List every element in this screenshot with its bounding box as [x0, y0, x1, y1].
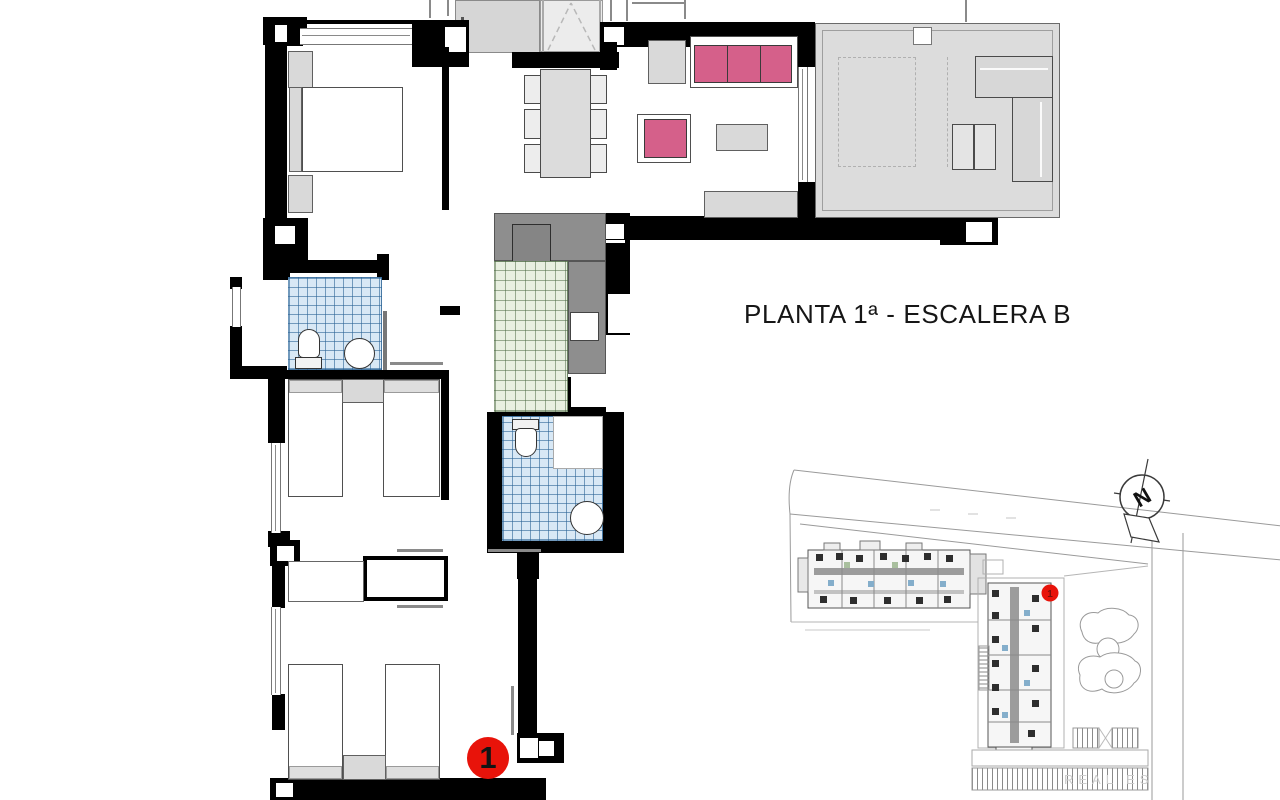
- wardrobe: [288, 561, 364, 602]
- cooktop: [512, 224, 551, 263]
- wall: [272, 694, 285, 730]
- shower-screen: [383, 311, 387, 370]
- bed-pillow: [386, 766, 439, 779]
- wall: [603, 412, 624, 544]
- neighbor-line: [447, 0, 449, 16]
- armchair-cushion: [644, 119, 687, 158]
- north-label: N: [1129, 483, 1155, 513]
- neighbor-line: [632, 2, 684, 4]
- door-line: [390, 362, 443, 365]
- closet-door-line: [397, 549, 443, 552]
- nightstand: [343, 755, 386, 780]
- toilet: [298, 329, 320, 358]
- site-stairs: [979, 646, 989, 690]
- bed-pillow: [289, 766, 342, 779]
- bed-pillow: [384, 380, 439, 393]
- window: [271, 607, 281, 695]
- wall-pillar: [603, 224, 624, 239]
- neighbor-line: [429, 0, 431, 18]
- wall: [300, 20, 412, 24]
- wall-pillar: [276, 783, 293, 797]
- wall: [230, 326, 242, 370]
- site-building-1: [798, 541, 986, 608]
- side-table: [648, 40, 686, 84]
- wall: [278, 370, 449, 379]
- terrace-pergola-line: [947, 57, 948, 167]
- sofa-cushion: [760, 45, 792, 83]
- dining-table: [540, 69, 591, 178]
- double-bed: [302, 87, 403, 172]
- window: [300, 28, 412, 45]
- wall: [600, 216, 980, 240]
- toilet-tank: [295, 357, 322, 369]
- wall-pillar: [277, 546, 294, 561]
- window: [511, 686, 514, 735]
- washbasin: [570, 501, 604, 535]
- wall: [600, 42, 617, 70]
- neighbor-line: [965, 0, 967, 22]
- wall: [270, 778, 546, 800]
- terrace-sofa: [1012, 97, 1053, 182]
- wall: [442, 47, 449, 210]
- terrace-sofa-line: [980, 68, 1048, 70]
- terrace-pillar: [913, 27, 932, 45]
- coffee-table: [716, 124, 768, 151]
- wall-pillar: [520, 738, 538, 758]
- shower-tray: [553, 416, 603, 469]
- wall-pillar: [275, 226, 295, 244]
- twin-bed: [383, 379, 440, 497]
- terrace-pergola-outline: [838, 57, 916, 167]
- neighbor-line: [684, 0, 686, 19]
- north-arrow-icon: N: [1114, 459, 1170, 543]
- twin-bed: [288, 379, 343, 497]
- floor-plan-page: PLANTA 1ª - ESCALERA B 1: [0, 0, 1280, 800]
- kitchen-sink: [570, 312, 599, 341]
- window-midline: [275, 445, 276, 531]
- terrace-sofa: [975, 56, 1053, 98]
- window-midline: [275, 609, 276, 693]
- site-unit-marker-label: 1: [1047, 589, 1053, 600]
- sofa-cushion: [694, 45, 728, 83]
- window-midline: [802, 69, 803, 180]
- watermark: REAL ES: [1064, 772, 1153, 787]
- site-pools: [1078, 608, 1140, 692]
- site-building-2: [979, 583, 1051, 759]
- wall: [517, 553, 539, 579]
- closet-door-line: [488, 549, 541, 552]
- neighbor-line: [610, 0, 612, 21]
- wall: [268, 379, 285, 443]
- closet-door-line: [397, 605, 443, 608]
- wall-pillar: [966, 222, 992, 242]
- wall: [798, 23, 815, 67]
- terrace-sofa-line: [1040, 102, 1042, 177]
- unit-marker-label: 1: [479, 740, 496, 776]
- nightstand: [342, 379, 384, 403]
- terrace-table-divider: [973, 125, 975, 169]
- page-title: PLANTA 1ª - ESCALERA B: [744, 299, 1071, 330]
- unit-marker: 1: [467, 737, 509, 779]
- window: [271, 443, 281, 533]
- site-plan: REAL ES N 1: [780, 450, 1280, 800]
- sideboard: [704, 191, 798, 218]
- nightstand: [288, 175, 313, 213]
- wall: [518, 577, 537, 735]
- door-opening: [608, 294, 630, 333]
- toilet: [515, 428, 537, 457]
- wall: [487, 412, 502, 544]
- neighbor-line: [626, 0, 628, 21]
- wall: [265, 42, 287, 224]
- window: [232, 287, 241, 327]
- twin-bed: [288, 664, 343, 780]
- wall: [272, 566, 285, 608]
- wall: [441, 370, 449, 500]
- washbasin: [344, 338, 375, 369]
- bed-pillow: [289, 380, 342, 393]
- nightstand: [288, 51, 313, 88]
- wall-pillar: [539, 741, 554, 756]
- window-midline: [302, 35, 410, 36]
- kitchen-floor-tiles: [494, 261, 568, 412]
- closet-inside: [367, 560, 444, 597]
- wall: [288, 260, 388, 273]
- wall: [440, 306, 460, 315]
- bed-headboard: [289, 87, 302, 172]
- twin-bed: [385, 664, 440, 780]
- elevator-symbol: [540, 0, 603, 52]
- wall: [263, 257, 290, 280]
- sofa-cushion: [727, 45, 761, 83]
- window: [798, 67, 808, 182]
